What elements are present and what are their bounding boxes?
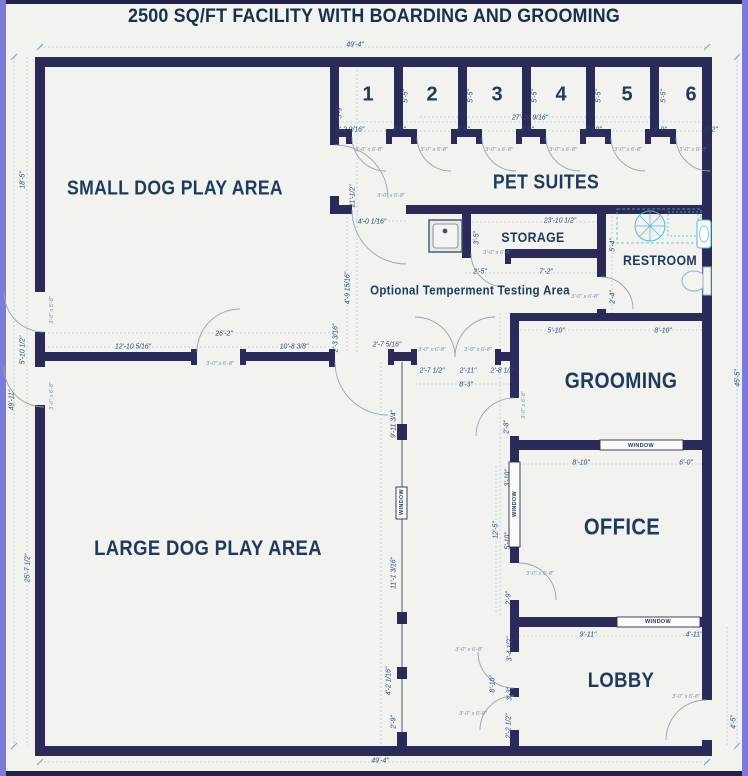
floor-plan-canvas: 2500 SQ/FT FACILITY WITH BOARDING AND GR… [0,0,748,776]
room-label-large-dog-play-area: LARGE DOG PLAY AREA [94,537,322,561]
dimension-label: 4'-5" [729,715,738,728]
dimension-label: 2'-2 9/16" [336,125,364,134]
dimension-label: 21'-1/2" [348,185,357,208]
door-size-tag: 3'-0" x 6'-8" [571,294,599,300]
dimension-label: 2'-2 1/2" [504,714,513,739]
dimension-label: 2'-8 1/2" [491,366,516,375]
dimension-label: 18'-5" [18,171,27,188]
dimension-label: 2'-5" [473,267,486,276]
dimension-label: 8'-10" [654,326,671,335]
door-size-tag: 3'-0" x 6'-8" [526,571,554,577]
suite-number: 3 [491,84,502,107]
dimension-label: 3'-3" [505,687,514,700]
dimension-label: 8'-10" [572,458,589,467]
dimension-label: 2'-3 3/16" [331,324,340,352]
dimension-label: 8'-3" [459,380,472,389]
door-size-tag: 3'-0" x 6'-8" [206,361,234,367]
dimension-label: 2'-7 5/16" [373,340,401,349]
dimension-label: 5'-4" [608,238,617,251]
dimension-label: 3'-5" [472,231,481,244]
window-label: WINDOW [512,491,518,517]
dimension-label: 4'-2 1/16" [384,667,393,695]
door-size-tag: 3'-0" x 6'-8" [672,694,700,700]
dimension-label: 3'-4 1/2" [505,637,514,662]
suite-number: 1 [362,84,373,107]
dimension-label: 4'-9 15/16" [343,272,352,304]
dimension-label: 2'-2" [704,125,717,134]
dimension-label: 9'-11 3/4" [389,410,398,438]
dimension-label: 45'-5" [733,369,742,386]
dimension-label: 5'-10" [503,532,512,549]
window-label: WINDOW [399,489,405,515]
dimension-label: 7'-2" [539,267,552,276]
door-size-tag: 3'-0" x 6'-8" [459,711,487,717]
dimension-label: 5'-9" [335,105,344,118]
dimension-label: 12'-5" [491,521,500,538]
dimension-label: 2'-11" [460,366,477,375]
dimension-label: 27'-10 9/16" [512,113,548,122]
door-size-tag: 3'-0" x 6'-8" [418,347,446,353]
dimension-label: 2'-8" [502,420,511,433]
door-size-tag: 3'-0" x 6'-8" [549,147,577,153]
dimension-label: 5'-5" [659,89,668,102]
dimension-label: 11'-1 3/16" [389,557,398,589]
suite-number: 4 [555,84,566,107]
room-label-lobby: LOBBY [588,669,654,693]
window-label: WINDOW [645,619,671,625]
suite-number: 5 [621,84,632,107]
door-size-tag: 3'-0" x 6'-8" [464,347,492,353]
dimension-label: 2'-9" [504,591,513,604]
door-size-tag: 3'-0" x 6'-8" [614,147,642,153]
dimension-label: 5'-5" [401,89,410,102]
dimension-label: 4'-9" [653,125,666,134]
dimension-label: 9'-11" [580,630,597,639]
dimension-label: 4'-5" [456,125,469,134]
blueprint-frame: 2500 SQ/FT FACILITY WITH BOARDING AND GR… [0,0,748,776]
dimension-label: 5'-5" [530,89,539,102]
room-label-office: OFFICE [584,514,660,541]
room-label-pet-suites: PET SUITES [493,172,599,195]
dimension-label: 2'-4" [608,290,617,303]
window-label: WINDOW [628,443,654,449]
dimension-lines-group [14,47,737,762]
door-size-tag: 3'-0" x 6'-8" [49,382,55,410]
dimension-label: 4'-10" [584,125,601,134]
door-size-tag: 3'-0" x 6'-8" [49,296,55,324]
dimension-label: 5'-10 1/2" [18,336,27,364]
dimension-label: 5'-5" [594,89,603,102]
door-size-tag: 3'-0" x 6'-8" [521,391,527,419]
utility-sink-group [429,220,462,252]
dimension-label: 12'-10 5/16" [115,342,151,351]
room-label-grooming: GROOMING [565,368,678,394]
dimension-label: 4'-11" [686,630,703,639]
door-size-tag: 3'-0" x 6'-8" [485,147,513,153]
dimension-label: 49'-4" [371,756,388,765]
dimension-label: 25'-7 1/2" [23,554,32,582]
room-label-small-dog-play-area: SMALL DOG PLAY AREA [67,178,283,201]
door-size-tag: 3'-0" x 6'-8" [455,647,483,653]
blueprint-inner-border: 2500 SQ/FT FACILITY WITH BOARDING AND GR… [6,0,742,776]
door-size-tag: 3'-0" x 6'-8" [377,193,405,199]
dimension-label: 3'-10" [503,469,512,486]
dimension-label: 8'-10" [488,675,497,692]
dimension-label: 26'-2" [215,329,232,338]
suite-number: 2 [426,84,437,107]
plan-title: 2500 SQ/FT FACILITY WITH BOARDING AND GR… [128,6,620,28]
dimension-label: 10'-8 3/8" [280,342,308,351]
dimension-label: 4'-9" [520,125,533,134]
door-size-tag: 3'-0" x 6'-8" [355,147,383,153]
room-label-restroom: RESTROOM [623,252,697,268]
dimension-label: 2'-7 1/2" [420,366,445,375]
door-size-tag: 3'-0" x 6'-8" [679,147,707,153]
door-size-tag: 3'-0" x 6'-8" [420,147,448,153]
dimension-label: 49'-4" [346,40,363,49]
dimension-label: 5'-10" [547,326,564,335]
room-label-storage: STORAGE [501,229,564,245]
dimension-label: 4'-0 1/16" [358,217,386,226]
dimension-label: 5'-5" [466,89,475,102]
door-size-tag: 3'-0" x 6'-8" [483,250,511,256]
dimension-label: 49'-11" [7,390,16,410]
room-label-testing-area: Optional Temperment Testing Area [370,283,570,298]
dimension-label: 2'-9" [389,715,398,728]
dimension-label: 4'-9" [392,125,405,134]
dimension-label: 6'-0" [679,458,692,467]
suite-number: 6 [685,84,696,107]
dimension-label: 23'-10 1/2" [544,216,576,225]
